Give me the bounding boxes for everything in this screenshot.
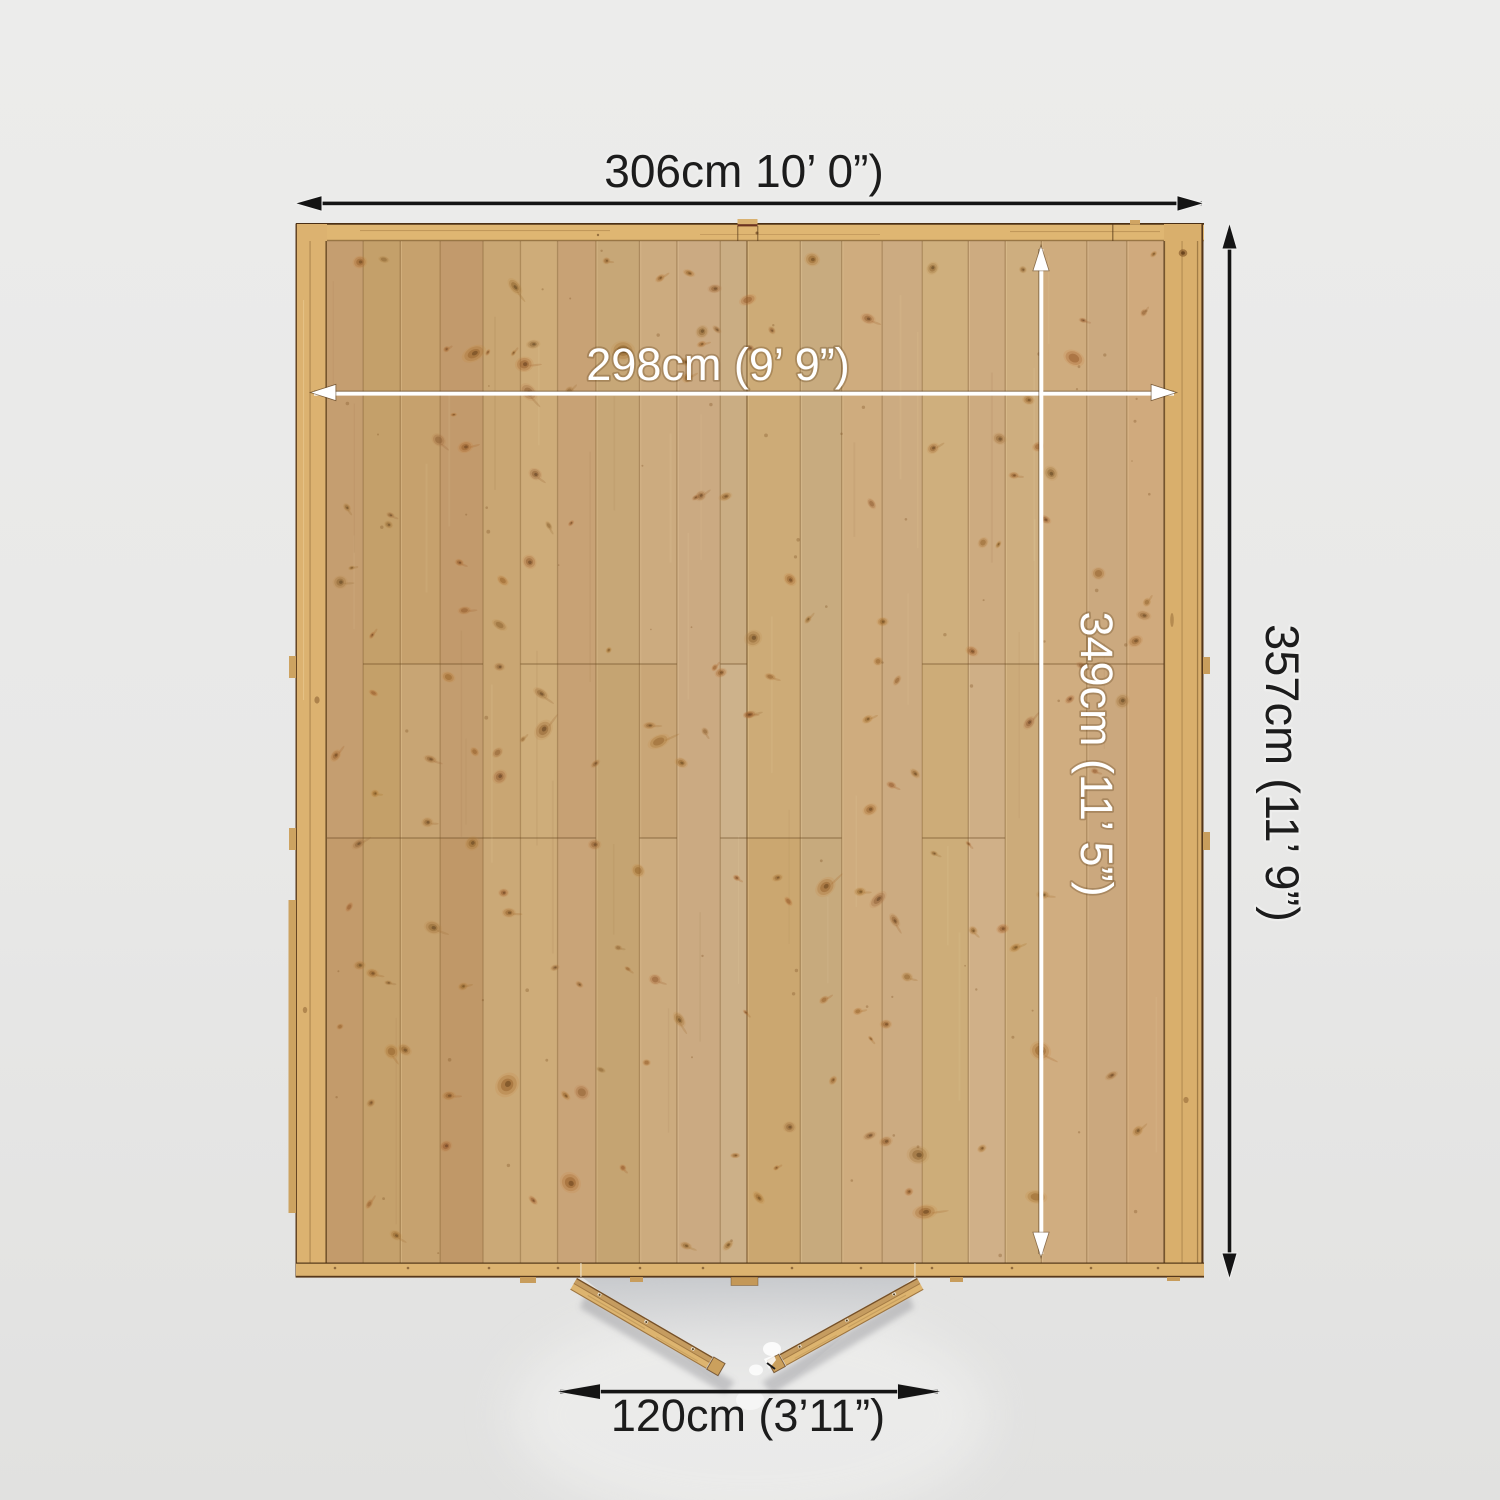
- svg-text:298cm (9’ 9”): 298cm (9’ 9”): [586, 339, 849, 390]
- svg-text:357cm (11’ 9”): 357cm (11’ 9”): [1256, 624, 1309, 922]
- svg-text:349cm (11’ 5”): 349cm (11’ 5”): [1071, 611, 1122, 896]
- svg-text:120cm (3’11”): 120cm (3’11”): [611, 1390, 885, 1441]
- svg-text:306cm 10’ 0”): 306cm 10’ 0”): [604, 145, 884, 197]
